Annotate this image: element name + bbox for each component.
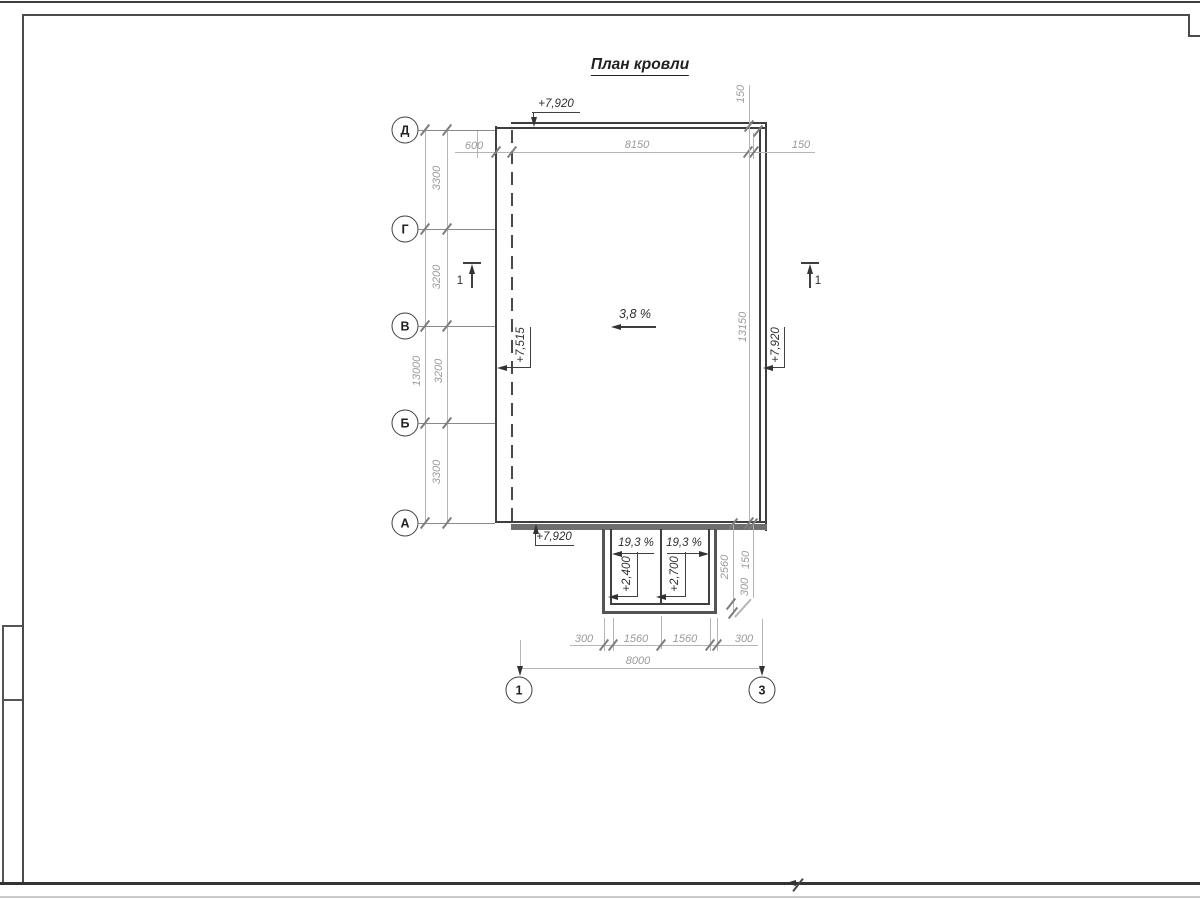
sheet-left-edge: [2, 626, 4, 883]
frame-left: [22, 14, 24, 883]
section-mark-right-arrow: [807, 264, 813, 274]
dim-left-4: 3300: [431, 460, 443, 484]
dim-top-2: 8150: [625, 139, 649, 151]
elevation-ridge-underline: [530, 327, 531, 368]
elevation-bottom-left-leader: [535, 532, 536, 546]
axis-line-d: [418, 130, 495, 131]
elevation-bottom-left: +7,920: [536, 531, 572, 543]
frame-top: [23, 14, 1189, 16]
axis-circle-b: Б: [392, 410, 419, 437]
binding-mark-2: [2, 699, 23, 701]
drawing-title: План кровли: [591, 56, 689, 76]
axis-label-1: 1: [516, 683, 523, 697]
dim-left-3: 3200: [433, 359, 445, 383]
dim-line-canopy-b: [753, 523, 754, 598]
slope-main-arrow: [611, 324, 621, 330]
section-mark-right-label: 1: [815, 275, 821, 287]
dim-line-bottom-chain: [570, 645, 758, 646]
dim-bottom-total: 8000: [626, 655, 650, 667]
axis-line-a: [418, 523, 495, 524]
roof-right-edge: [759, 127, 761, 523]
dim-8000-arrow-right: [759, 666, 765, 676]
axis-label-g: Г: [401, 222, 408, 236]
slope-canopy-right: 19,3 %: [666, 537, 702, 549]
dim-top-3: 150: [792, 139, 810, 151]
axis-circle-1: 1: [506, 677, 533, 704]
axis-label-d: Д: [401, 123, 410, 137]
elevation-top: +7,920: [538, 98, 574, 110]
elevation-top-underline: [532, 112, 580, 113]
elevation-bottom-left-underline: [535, 545, 574, 546]
roof-fascia-top-outer: [511, 122, 767, 124]
dim-left-1: 3300: [431, 166, 443, 190]
elevation-ridge: +7,515: [515, 327, 527, 363]
slope-main-arrow-line: [615, 326, 656, 328]
axis-label-v: В: [400, 319, 409, 333]
axis-circle-a: А: [392, 510, 419, 537]
dim-bottom-4: 300: [735, 633, 753, 645]
axis-label-a: А: [400, 516, 409, 530]
axis-line-v: [418, 326, 495, 327]
elevation-ridge-arrow: [497, 365, 507, 371]
dim-right-eave: 150: [735, 85, 747, 103]
roof-fascia-right-outer: [765, 122, 767, 531]
dim-top-1: 600: [465, 140, 483, 152]
dim-line-bottom-total: [520, 668, 762, 669]
dim-left-total: 13000: [411, 356, 423, 387]
axis-circle-g: Г: [392, 216, 419, 243]
elevation-canopy-left: +2,400: [621, 556, 633, 592]
dim-canopy-150: 150: [740, 551, 752, 569]
dim-left-2: 3200: [431, 265, 443, 289]
elevation-canopy-left-underline: [637, 552, 638, 597]
dim-right-total: 13150: [737, 312, 749, 343]
roof-left-edge: [495, 126, 497, 523]
dim-bottom-1: 300: [575, 633, 593, 645]
dim-bottom-3: 1560: [673, 633, 697, 645]
frame-corner-box-v: [1188, 14, 1190, 37]
dim-8000-arrow-left: [517, 666, 523, 676]
elevation-right: +7,920: [770, 327, 782, 363]
section-mark-left-arrow: [469, 264, 475, 274]
canopy-outer-left: [602, 529, 605, 614]
elevation-right-underline: [784, 327, 785, 368]
frame-bottom: [0, 882, 1200, 885]
canopy-outer-right: [714, 529, 717, 614]
axis-line-g: [418, 229, 495, 230]
binding-mark-1: [2, 625, 23, 627]
elevation-canopy-right-underline: [685, 552, 686, 597]
axis-circle-d: Д: [392, 117, 419, 144]
dim-bottom-2: 1560: [624, 633, 648, 645]
frame-bottom-arrow: [786, 880, 796, 886]
canopy-inner-right: [708, 529, 710, 605]
elevation-top-arrow: [531, 117, 537, 127]
roof-top-edge: [495, 127, 767, 129]
frame-corner-box-h: [1189, 35, 1200, 37]
axis-circle-3: 3: [749, 677, 776, 704]
sheet-bottom-edge: [0, 896, 1200, 898]
elevation-bottom-left-arrow: [533, 524, 539, 534]
elevation-canopy-right-arrow: [656, 594, 666, 600]
drawing-sheet: План кровли Д Г В Б А 3300 3200 3200 330…: [0, 0, 1200, 900]
roof-bottom-edge: [495, 521, 767, 523]
axis-line-b: [418, 423, 495, 424]
axis-label-3: 3: [759, 683, 766, 697]
dim-canopy-300: 300: [739, 578, 751, 596]
axis-circle-v: В: [392, 313, 419, 340]
canopy-outer-bottom: [602, 611, 717, 614]
hidden-wall-line: [511, 130, 513, 521]
dim-line-right: [749, 85, 750, 523]
dim-canopy-height: 2560: [719, 555, 731, 579]
sheet-top-edge: [0, 1, 1200, 3]
slope-canopy-right-arrow: [699, 551, 709, 557]
section-mark-left-label: 1: [457, 275, 463, 287]
ext-axis-3: [762, 619, 763, 668]
axis-label-b: Б: [401, 416, 410, 430]
slope-main: 3,8 %: [619, 307, 651, 321]
slope-canopy-left: 19,3 %: [618, 537, 654, 549]
elevation-canopy-right: +2,700: [669, 556, 681, 592]
elevation-right-arrow: [763, 365, 773, 371]
ext-axis-1: [520, 640, 521, 668]
elevation-canopy-left-arrow: [608, 594, 618, 600]
